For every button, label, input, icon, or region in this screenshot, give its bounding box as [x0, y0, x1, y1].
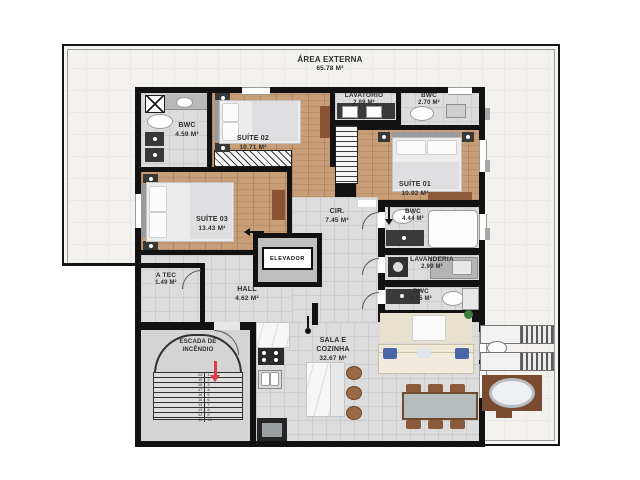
elevator-label: ELEVADOR: [270, 256, 305, 262]
nightstand: [462, 132, 474, 142]
ac-unit: [485, 108, 490, 120]
pillow: [149, 212, 167, 238]
shower-pan: [462, 288, 479, 310]
plant: [464, 310, 473, 319]
shower-box: [145, 95, 165, 113]
burner: [262, 351, 266, 355]
pillow: [149, 186, 167, 212]
stairs-direction-arrow-head: [210, 375, 220, 382]
room-label-suite3: SUÍTE 03 13.43 m²: [170, 216, 254, 233]
kitchen-sink-bowl: [270, 372, 279, 386]
sink: [366, 106, 382, 118]
kitchen-island-side: [330, 362, 345, 417]
sofa-pillow: [417, 348, 431, 358]
door-opening: [378, 290, 385, 304]
dining-chair: [428, 420, 443, 429]
ac-unit: [485, 160, 490, 172]
room-label-bwc4: BWC 3.05 m²: [392, 288, 450, 304]
outdoor-label: ÁREA EXTERNA 65.78 m²: [245, 55, 415, 73]
nightstand: [143, 241, 158, 250]
nightstand: [378, 132, 390, 142]
kitchen-counter: [256, 322, 290, 348]
sun-lounger: [480, 352, 522, 371]
suite1-closet: [335, 125, 358, 184]
burner: [274, 358, 278, 362]
wall: [312, 303, 318, 325]
room-label-atec: A TEC 1.49 m²: [140, 272, 192, 288]
suite2-wardrobe: [214, 150, 292, 167]
sink: [342, 106, 358, 118]
door-opening: [378, 257, 385, 273]
toilet: [410, 106, 434, 121]
stool: [346, 386, 362, 400]
sink: [402, 236, 406, 240]
dining-chair: [406, 420, 421, 429]
outdoor-table-top: [489, 378, 535, 408]
room-label-hall: HALL 4.62 m²: [217, 286, 277, 303]
kitchen-island: [306, 362, 332, 417]
outdoor-table-leg: [496, 411, 512, 418]
coffee-table: [412, 315, 446, 341]
stool: [346, 406, 362, 420]
stairs-direction-arrow: [214, 361, 217, 375]
door-leaf: [272, 190, 285, 220]
fridge-front: [262, 423, 282, 437]
kitchen-sink-bowl: [261, 372, 270, 386]
pillow: [427, 140, 457, 155]
stairs-label-line1: ESCADA DE: [163, 339, 233, 347]
sun-lounger-back: [520, 352, 554, 371]
sun-lounger-back: [520, 325, 554, 344]
dining-table: [402, 392, 478, 420]
room-label-cir: CIR. 7.45 m²: [307, 208, 367, 225]
door-arrow: [307, 316, 309, 328]
stool: [346, 366, 362, 380]
door-pivot-dot: [305, 328, 311, 334]
outdoor-name: ÁREA EXTERNA: [245, 55, 415, 65]
room-label-lavanderia: LAVANDERIA 2.99 m²: [388, 256, 476, 272]
passage-wood-floor: [292, 167, 335, 197]
room-label-bwc1: BWC 4.59 m²: [157, 122, 217, 139]
floor-plan: ÁREA EXTERNA 65.78 m²: [0, 0, 640, 480]
outdoor-area-value: 65.78 m²: [245, 65, 415, 73]
pillow: [222, 103, 239, 122]
stairs-label-line2: INCÊNDIO: [163, 347, 233, 355]
door-opening: [358, 200, 376, 207]
wall: [135, 263, 205, 268]
burner: [274, 351, 278, 355]
room-label-bwc2: BWC 2.70 m²: [400, 92, 458, 108]
bath-cabinet: [145, 148, 164, 162]
burner: [262, 358, 266, 362]
dining-chair: [450, 420, 465, 429]
stairs-steps: 201 192 183 174 165 156 147 138 129 1110: [153, 372, 243, 420]
ac-unit: [485, 228, 490, 240]
room-label-suite2: SUÍTE 02 10.71 m²: [213, 135, 293, 152]
room-label-suite1: SUÍTE 01 10.92 m²: [375, 181, 455, 198]
pillow: [396, 140, 426, 155]
door-opening: [214, 322, 240, 330]
plan-cutout: [56, 266, 135, 464]
stair-step: 1110: [154, 417, 242, 422]
room-label-bwc3: BWC 4.44 m²: [384, 208, 442, 224]
stairs-label: ESCADA DE INCÊNDIO: [163, 339, 233, 354]
window: [242, 87, 270, 95]
sofa-pillow: [383, 348, 397, 359]
room-label-sala: SALA E COZINHA 32.67 m²: [302, 337, 364, 363]
door-leaf: [320, 106, 330, 138]
sink: [176, 97, 193, 108]
room-label-lavatorio: LAVATORIO 2.89 m²: [331, 92, 397, 108]
sofa-pillow: [455, 348, 469, 359]
elevator-plate: ELEVADOR: [262, 247, 313, 270]
